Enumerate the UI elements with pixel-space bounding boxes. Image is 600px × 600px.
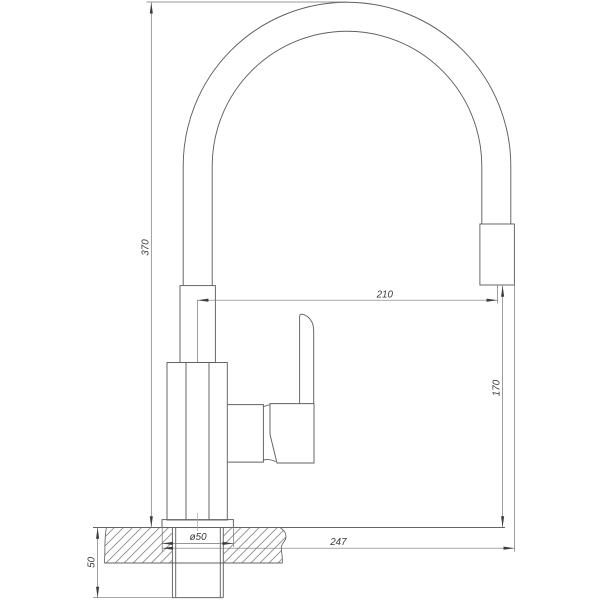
svg-text:247: 247 [329,537,347,548]
svg-text:50: 50 [87,556,98,567]
svg-text:370: 370 [140,239,151,256]
svg-text:ø50: ø50 [190,532,207,543]
svg-text:210: 210 [376,289,394,300]
svg-text:170: 170 [491,379,502,396]
